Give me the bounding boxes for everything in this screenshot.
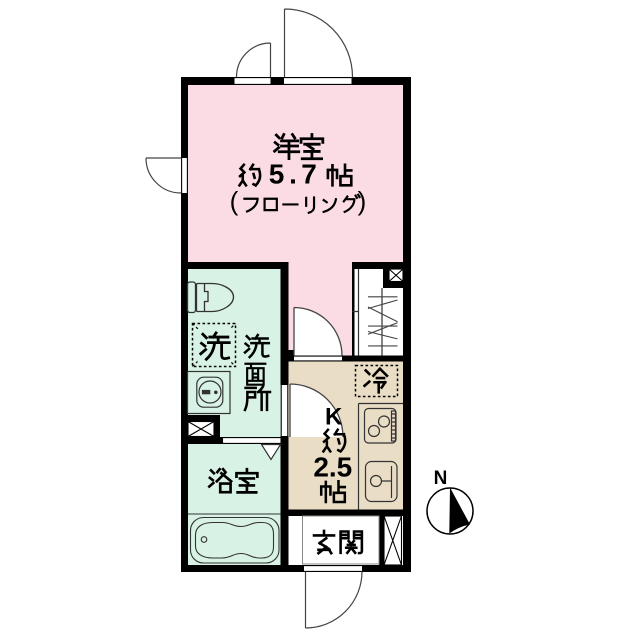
svg-text:2.5: 2.5 [313,452,352,483]
svg-text:N: N [434,468,448,489]
svg-text:7: 7 [301,159,317,190]
svg-text:.: . [289,159,297,190]
svg-text:K: K [325,404,343,431]
svg-text:5: 5 [269,159,285,190]
svg-text:): ) [358,186,367,216]
svg-text:(: ( [230,186,239,216]
